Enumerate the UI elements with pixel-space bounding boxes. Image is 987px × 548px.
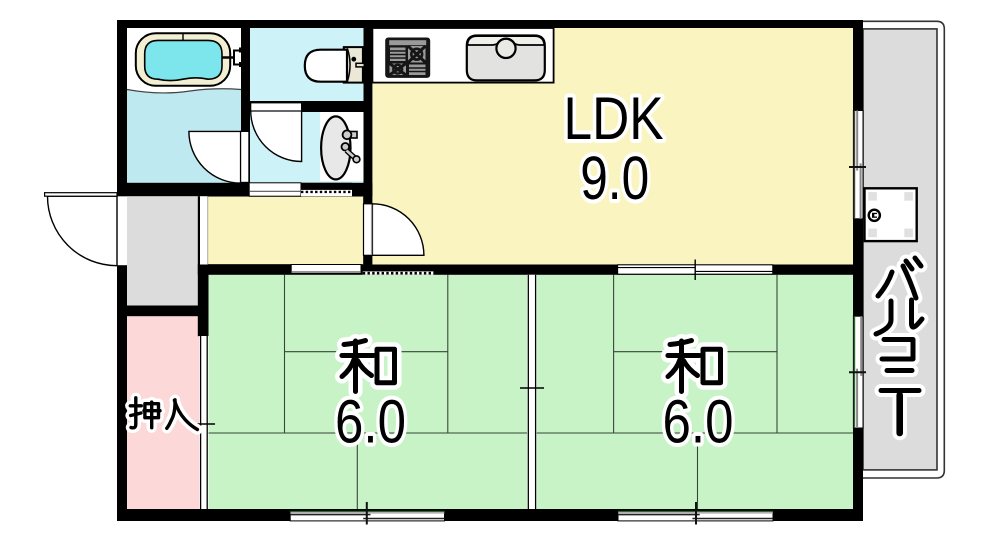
svg-text:9.0: 9.0 [580, 144, 649, 212]
svg-text:6.0: 6.0 [335, 388, 406, 456]
svg-text:LDK: LDK [564, 85, 664, 152]
svg-text:6.0: 6.0 [663, 388, 734, 456]
